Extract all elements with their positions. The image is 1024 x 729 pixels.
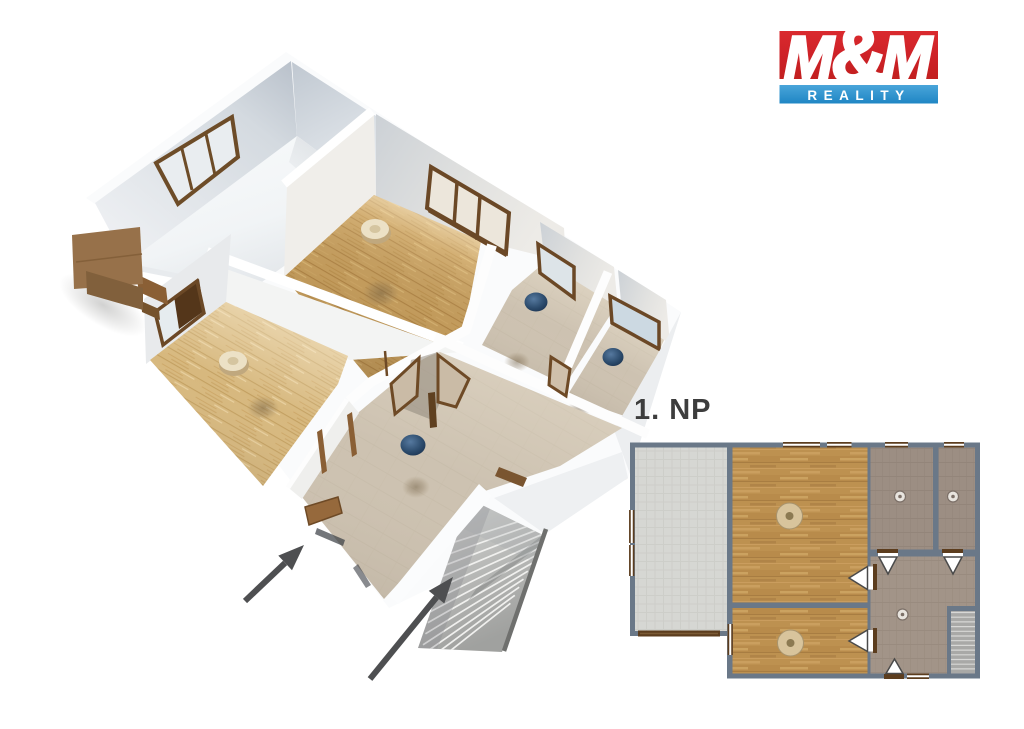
svg-text:&: & <box>830 10 887 99</box>
svg-text:REALITY: REALITY <box>807 88 910 103</box>
svg-text:M: M <box>784 24 836 91</box>
svg-text:1. NP: 1. NP <box>634 394 712 426</box>
svg-text:M: M <box>882 24 934 91</box>
